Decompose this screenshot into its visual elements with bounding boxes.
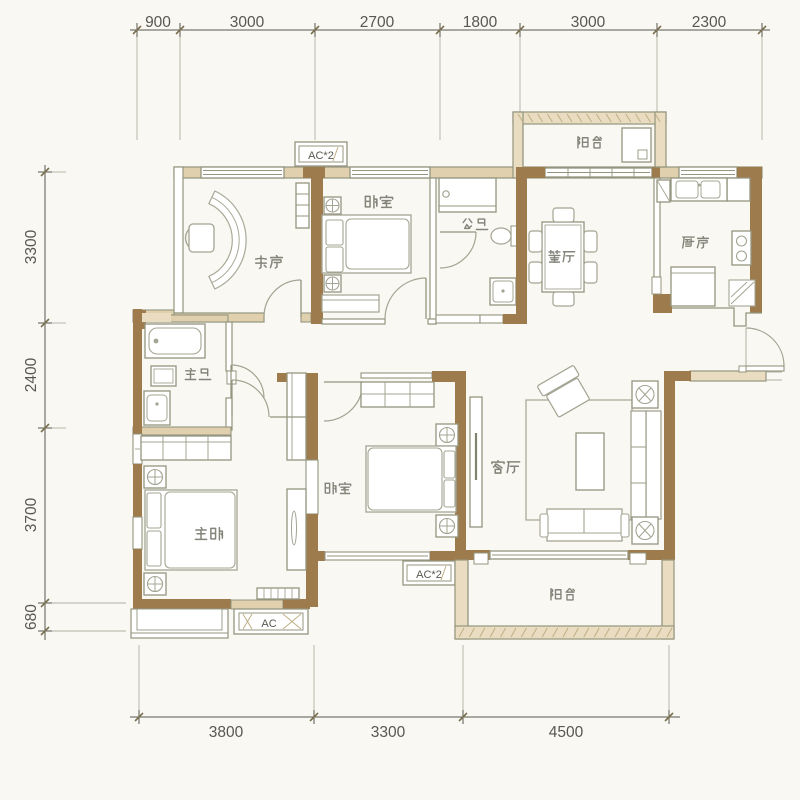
svg-text:3800: 3800	[209, 724, 244, 741]
svg-text:AC: AC	[261, 618, 276, 630]
svg-text:3300: 3300	[371, 724, 406, 741]
svg-text:AC*2: AC*2	[416, 569, 442, 581]
svg-text:900: 900	[145, 14, 171, 31]
svg-text:3000: 3000	[571, 14, 606, 31]
svg-text:2700: 2700	[360, 14, 395, 31]
svg-text:4500: 4500	[549, 724, 584, 741]
svg-text:1800: 1800	[463, 14, 498, 31]
svg-text:2400: 2400	[23, 357, 40, 392]
svg-text:2300: 2300	[692, 14, 727, 31]
svg-text:3700: 3700	[23, 497, 40, 532]
svg-text:AC*2: AC*2	[308, 150, 334, 162]
svg-text:3300: 3300	[23, 229, 40, 264]
svg-text:3000: 3000	[230, 14, 265, 31]
svg-text:680: 680	[23, 604, 40, 630]
